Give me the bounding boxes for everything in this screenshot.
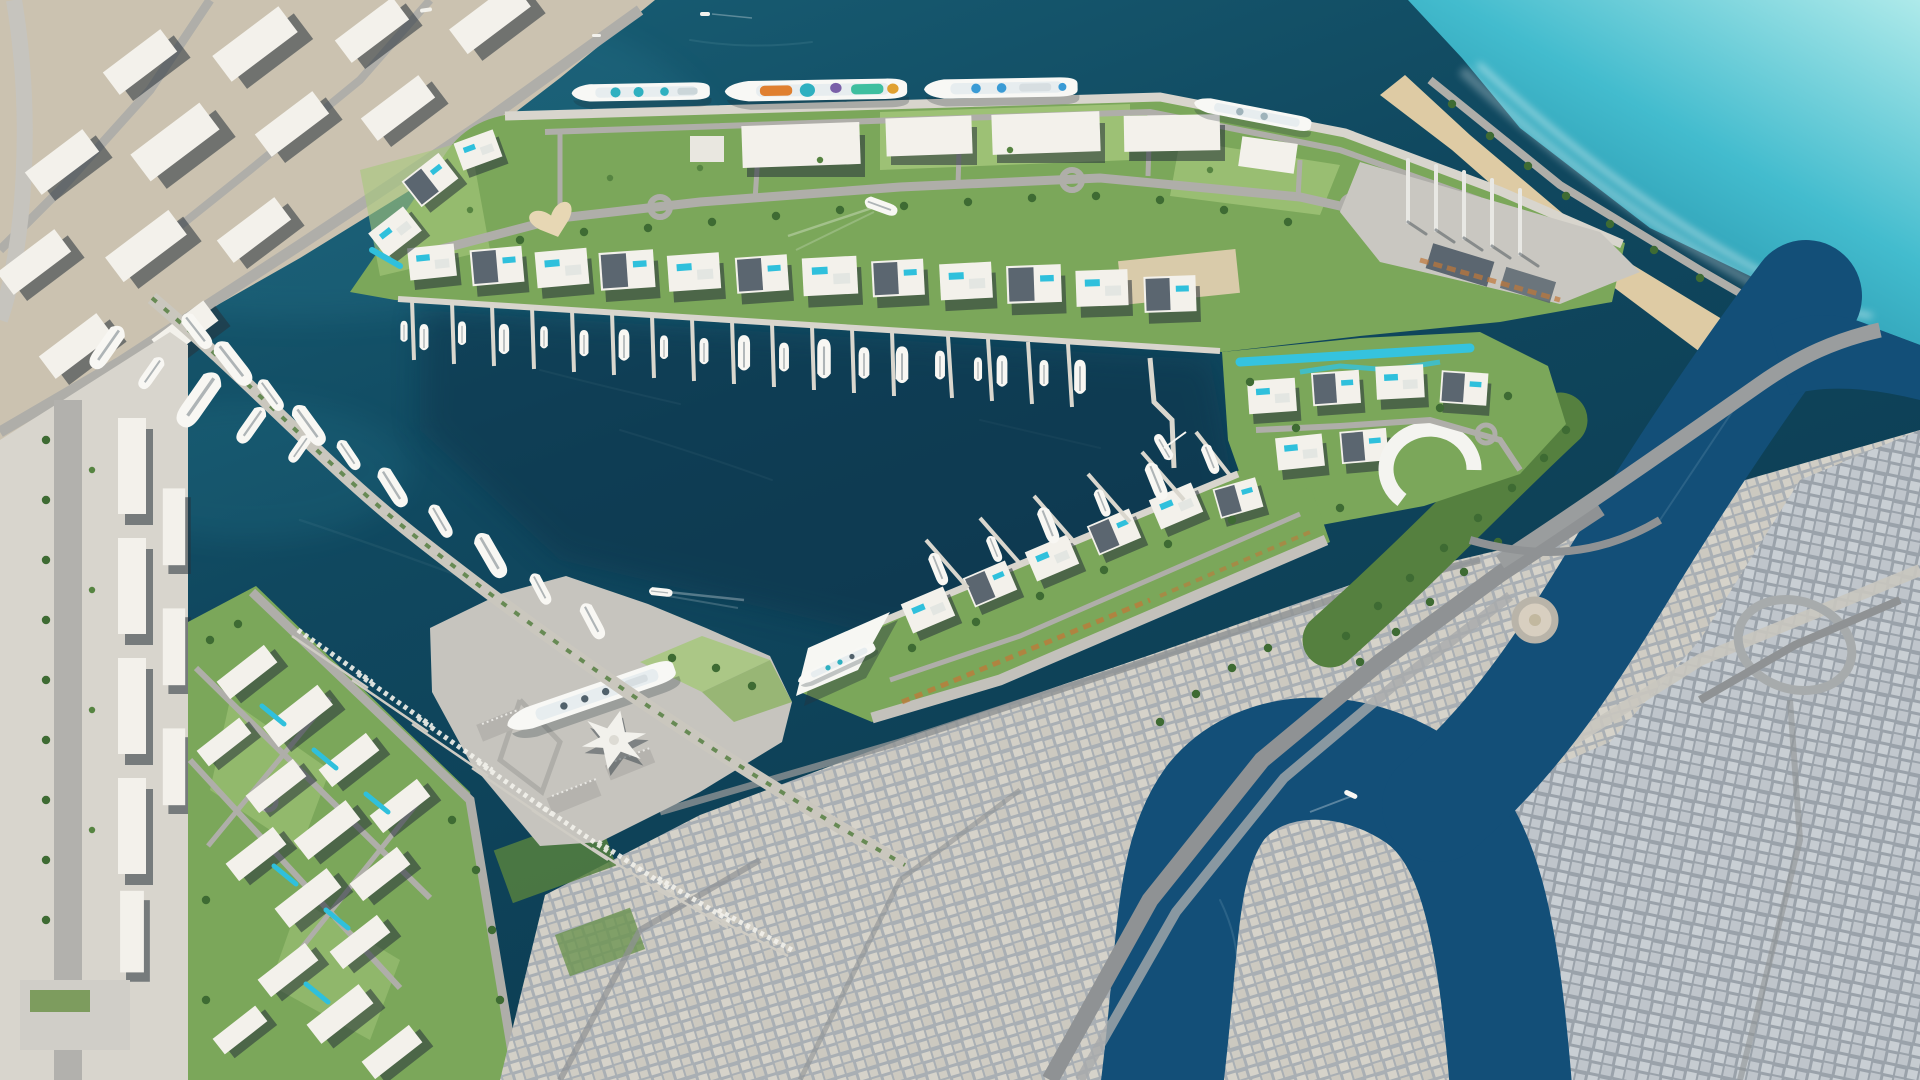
west-port-strip [0,332,191,1080]
masterplan-canvas: Aerial masterplan render of a coastal cr… [0,0,1920,1080]
cruise-ship-2 [725,78,910,110]
plaza-centerpiece [1529,614,1541,626]
aerial-masterplan-view: Aerial masterplan render of a coastal cr… [0,0,1920,1080]
depot-green-roof [30,990,90,1012]
port-strip-land [0,332,188,1080]
cruise-ship-3 [924,77,1080,107]
strip-road [54,400,82,1080]
cruise-ship-1 [571,82,711,109]
